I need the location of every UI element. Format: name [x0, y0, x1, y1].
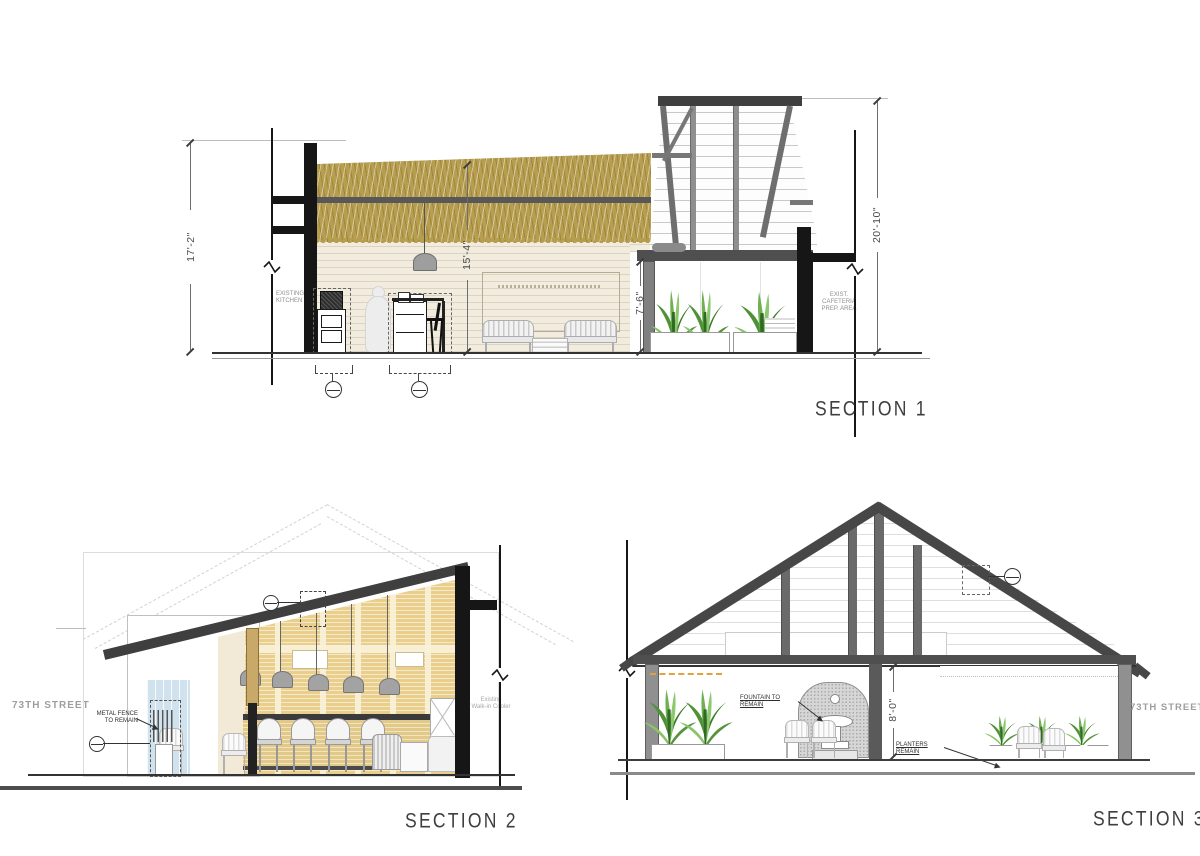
dimension-line-17-2 [190, 143, 191, 210]
section-1-title: SECTION 1 [815, 398, 928, 422]
extension-line [56, 628, 86, 629]
pendant-light [272, 671, 293, 688]
section-cut-line [271, 128, 273, 385]
chair [784, 720, 810, 758]
beam-stub [273, 226, 304, 234]
skylight-rung [652, 153, 692, 158]
roof-beam [317, 197, 651, 203]
existing-kitchen-label: EXISTING KITCHEN [276, 291, 310, 305]
callout-stem [332, 373, 333, 381]
pendant-cord [424, 203, 425, 255]
ground-line-secondary [610, 772, 1195, 775]
gable-post-center [874, 509, 884, 657]
planter-pot [1086, 745, 1110, 760]
pendant-light [308, 674, 329, 691]
detail-callout-bubble [325, 381, 342, 398]
ground-line [28, 774, 515, 776]
pendant-light [343, 676, 364, 693]
dimension-text-ceiling: 8'-0" [887, 675, 899, 745]
table-top [392, 298, 444, 301]
ribbed-chair [372, 734, 402, 770]
detail-area-marker [300, 591, 326, 627]
detail-callout-bubble [411, 381, 428, 398]
dimension-line-20-10 [877, 101, 878, 198]
chair [811, 720, 837, 758]
awning-scallop [650, 673, 722, 675]
x-rack-cabinet [430, 698, 456, 738]
coffee-machine [320, 291, 343, 311]
skylight-cap [658, 96, 802, 106]
break-symbol [263, 260, 281, 274]
plant-cluster [640, 682, 736, 746]
ground-line-secondary [212, 358, 930, 359]
planter-box [650, 332, 730, 354]
section-cut-line [854, 130, 856, 437]
cafeteria-wall-cut [797, 252, 813, 352]
break-symbol [491, 668, 509, 682]
chair [1016, 726, 1042, 758]
walk-in-cooler-label: Existing Walk-in Cooler [468, 697, 514, 711]
pendant-light [413, 253, 437, 271]
dimension-text-right: 20'-10" [871, 190, 883, 260]
beam-stub [813, 253, 855, 262]
metal-fence-label: METAL FENCE TO REMAIN [80, 711, 138, 725]
gable-post [781, 565, 790, 657]
callout-stem [418, 373, 419, 381]
ground-line [212, 352, 922, 354]
rolled-shade [652, 243, 686, 252]
center-wall-cut [869, 664, 882, 759]
fence-base [155, 744, 173, 776]
eave-beam [633, 655, 1136, 664]
cafeteria-wall-upper [797, 227, 811, 253]
dimension-text-interior: 15'-4" [461, 220, 473, 290]
skylight-rung [790, 200, 813, 205]
wood-post [246, 628, 259, 706]
high-wall-cut [455, 566, 470, 778]
dimension-tick [186, 348, 194, 356]
street-label-right: 73TH STREET [1130, 702, 1200, 713]
fountain-label: FOUNTAIN TO REMAIN [740, 695, 804, 709]
pendant-cord [387, 595, 388, 679]
dimension-text-left: 17'-2" [185, 212, 197, 282]
section-2-title: SECTION 2 [405, 810, 518, 834]
curtain-scallop [940, 666, 1118, 677]
extension-line [182, 140, 346, 141]
ground-line-heavy [0, 786, 522, 790]
beam-stub [470, 600, 497, 610]
dimension-line-17-2 [190, 284, 191, 352]
ground-line [618, 759, 1150, 761]
stacked-trays [765, 318, 795, 332]
beam-stub [273, 196, 304, 204]
gable-post [848, 526, 857, 657]
door-frame [248, 703, 257, 775]
pendant-cord [280, 621, 281, 672]
side-table [400, 742, 428, 772]
thatch-roof [317, 150, 651, 242]
dimension-text-porch: 7'-6" [634, 268, 646, 338]
chair [221, 733, 247, 775]
detail-bracket [389, 365, 451, 374]
extension-line [800, 98, 888, 99]
break-symbol [846, 262, 864, 276]
pendant-cord [351, 604, 352, 677]
banquette [428, 736, 457, 772]
dimension-line-20-10 [877, 252, 878, 352]
section-3-title: SECTION 3 [1093, 808, 1200, 832]
chair [1042, 728, 1066, 758]
roof-edge [317, 149, 657, 162]
detail-callout-bubble [1004, 568, 1021, 585]
bench [482, 320, 534, 352]
callout-leader [988, 576, 1005, 577]
callout-leader [103, 743, 150, 744]
planter-box [733, 332, 797, 354]
callout-leader [277, 602, 300, 603]
street-label-left: 73TH STREET [12, 700, 90, 711]
prep-cart [393, 301, 427, 354]
detail-area-marker [962, 565, 990, 595]
gable-post [913, 545, 922, 657]
dimension-line-15-4 [467, 280, 468, 352]
bench [564, 320, 617, 352]
planters-label: PLANTERS REMAIN [896, 742, 948, 756]
drawing-canvas: 17'-2" EXISTING KITCHEN 15'-4" [0, 0, 1200, 856]
equipment-cart [317, 309, 346, 354]
thatch-fringe [317, 238, 651, 243]
pendant-light [379, 678, 400, 695]
detail-bracket [315, 365, 353, 374]
planter-pot [988, 745, 1014, 760]
sign-text-decoration [498, 285, 602, 288]
